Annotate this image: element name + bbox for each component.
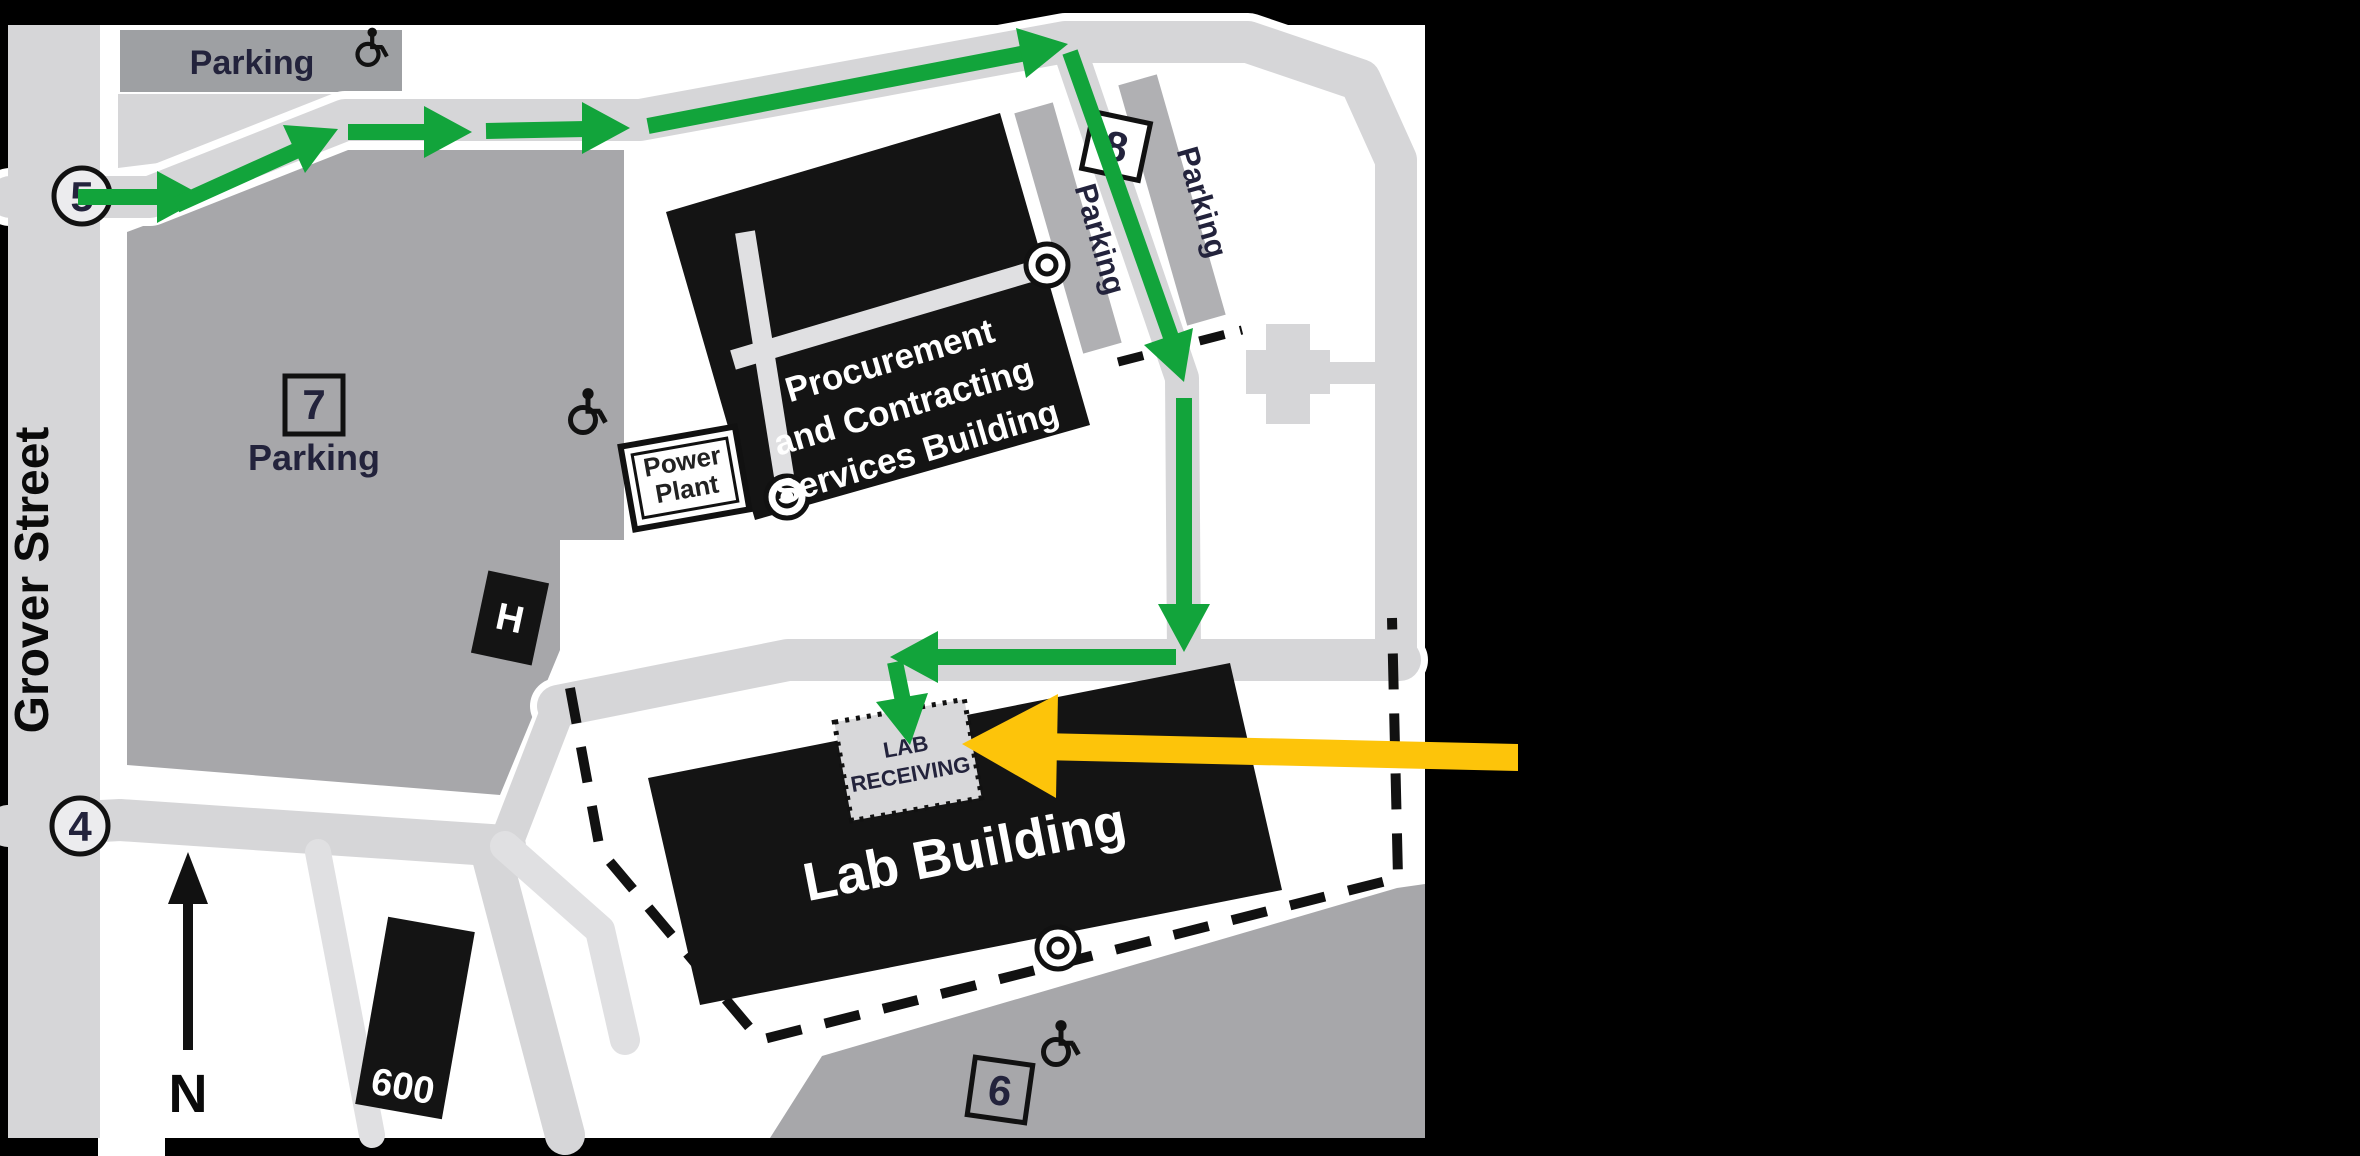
grover-street-label: Grover Street [6,427,59,734]
svg-text:N: N [169,1064,208,1124]
svg-text:7: 7 [302,381,325,428]
power-plant: Power Plant [621,427,750,530]
dock-symbol-procurement-north [1026,244,1068,286]
campus-map-screenshot: Power Plant H Lab Building 600 LAB RECEI… [0,0,2360,1156]
campus-map: Power Plant H Lab Building 600 LAB RECEI… [0,0,2360,1156]
dock-symbol-lab [1037,927,1079,969]
entrance-marker-4: 4 [52,798,108,854]
svg-text:4: 4 [68,803,92,850]
svg-text:Parking: Parking [248,437,380,478]
top-parking-label: Parking [190,44,315,82]
map-bottom-notch [98,1130,165,1156]
